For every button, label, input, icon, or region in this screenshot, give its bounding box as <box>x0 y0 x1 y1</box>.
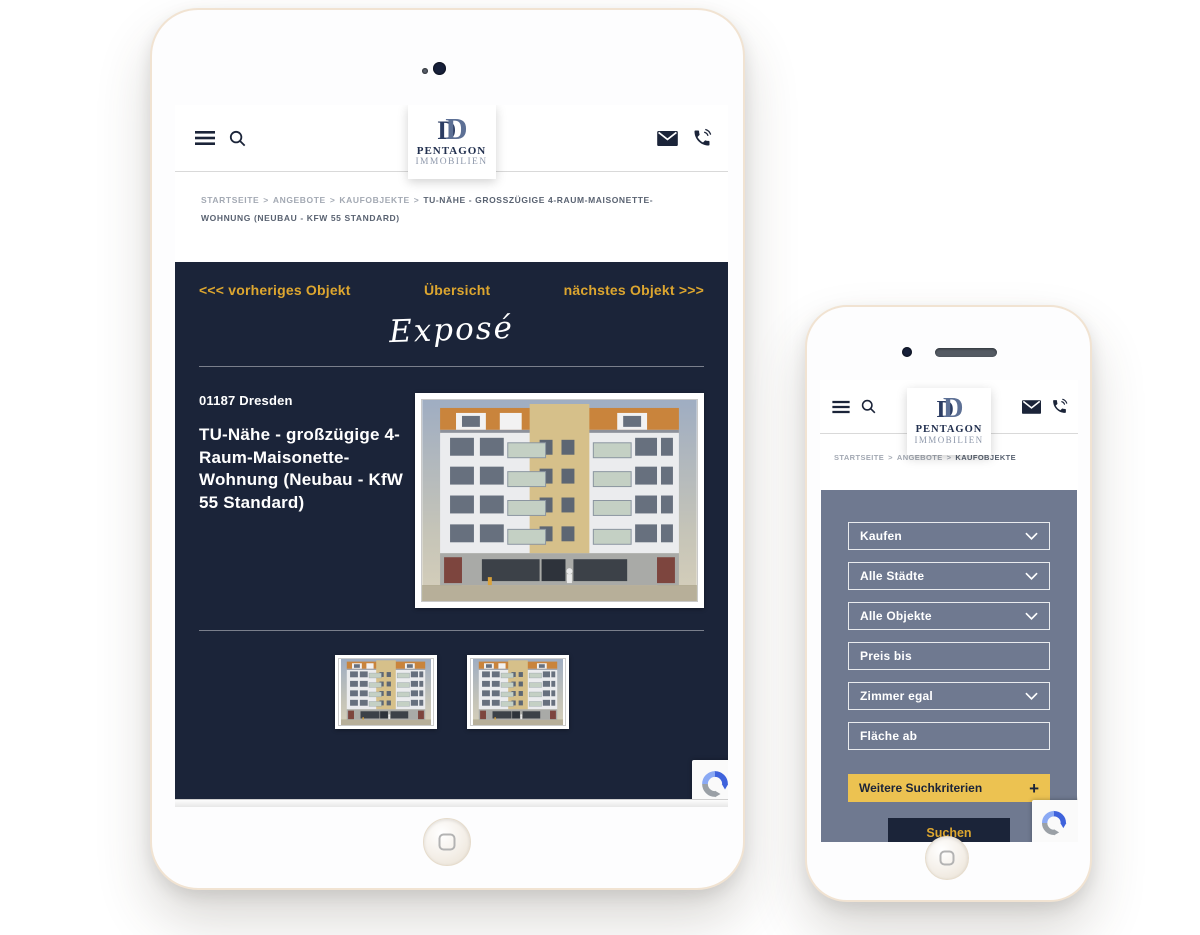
mail-icon[interactable] <box>1022 400 1041 414</box>
page-bottom-strip <box>175 799 728 807</box>
mail-icon[interactable] <box>657 131 678 146</box>
recaptcha-icon <box>1040 809 1068 837</box>
property-content: 01187 Dresden TU-Nähe - großzügige 4-Rau… <box>199 393 704 608</box>
chevron-down-icon <box>1025 572 1038 580</box>
phone-site-header: DD PENTAGON IMMOBILIEN <box>820 380 1078 434</box>
previous-object-link[interactable]: <<< vorheriges Objekt <box>199 282 351 298</box>
phone-screen: DD PENTAGON IMMOBILIEN STARTSEITE>ANGEBO… <box>820 380 1078 842</box>
pentagon-logo[interactable]: DD PENTAGON IMMOBILIEN <box>408 105 496 179</box>
breadcrumb-link-kaufobjekte[interactable]: KAUFOBJEKTE <box>339 195 409 205</box>
phone-speaker-slot <box>935 348 997 357</box>
filter-label: Zimmer egal <box>860 689 933 703</box>
chevron-down-icon <box>1025 532 1038 540</box>
logo-subtitle: IMMOBILIEN <box>915 435 984 445</box>
divider <box>199 630 704 631</box>
property-main-photo[interactable] <box>415 393 704 608</box>
menu-icon[interactable] <box>832 400 850 414</box>
expose-script-heading: Exposé <box>199 303 705 357</box>
phone-device-frame: DD PENTAGON IMMOBILIEN STARTSEITE>ANGEBO… <box>805 305 1092 902</box>
tablet-screen: DD PENTAGON IMMOBILIEN STARTSEITE>ANGEBO… <box>175 105 728 807</box>
logo-name: PENTAGON <box>916 424 983 435</box>
pentagon-logo[interactable]: DD PENTAGON IMMOBILIEN <box>907 388 991 455</box>
property-location: 01187 Dresden <box>199 393 407 408</box>
expose-section: <<< vorheriges Objekt Übersicht nächstes… <box>175 262 728 799</box>
tablet-home-button[interactable] <box>423 818 471 866</box>
filter-input-flaeche[interactable]: Fläche ab <box>848 722 1050 750</box>
object-navigation: <<< vorheriges Objekt Übersicht nächstes… <box>199 282 704 298</box>
more-criteria-button[interactable]: Weitere Suchkriterien + <box>848 774 1050 802</box>
page-background: DD PENTAGON IMMOBILIEN STARTSEITE>ANGEBO… <box>0 0 1200 935</box>
tablet-site-header: DD PENTAGON IMMOBILIEN <box>175 105 728 172</box>
breadcrumb-link-startseite[interactable]: STARTSEITE <box>834 453 884 462</box>
photo-thumbnails <box>199 655 704 729</box>
divider <box>199 366 704 367</box>
breadcrumb-separator: > <box>263 195 269 205</box>
filter-label: Preis bis <box>860 649 912 663</box>
search-icon[interactable] <box>861 399 876 414</box>
logo-monogram: DD <box>438 117 466 142</box>
menu-icon[interactable] <box>195 130 215 146</box>
breadcrumb-separator: > <box>330 195 336 205</box>
search-filter-panel: Kaufen Alle Städte Alle Objekte Preis bi… <box>821 490 1077 842</box>
overview-link[interactable]: Übersicht <box>424 282 490 298</box>
breadcrumb-separator: > <box>414 195 420 205</box>
phone-home-button[interactable] <box>925 836 969 880</box>
breadcrumb-link-startseite[interactable]: STARTSEITE <box>201 195 259 205</box>
breadcrumb-link-angebote[interactable]: ANGEBOTE <box>273 195 326 205</box>
home-button-square <box>439 834 456 851</box>
plus-icon: + <box>1029 780 1039 797</box>
filter-select-objekte[interactable]: Alle Objekte <box>848 602 1050 630</box>
recaptcha-icon <box>700 769 728 799</box>
logo-name: PENTAGON <box>417 145 487 157</box>
thumbnail-photo-1[interactable] <box>335 655 437 729</box>
chevron-down-icon <box>1025 612 1038 620</box>
tablet-sensor-dot <box>422 68 428 74</box>
property-title: TU-Nähe - großzügige 4-Raum-Maisonette-W… <box>199 424 407 514</box>
recaptcha-badge[interactable] <box>1032 800 1078 842</box>
logo-monogram: DD <box>937 398 962 421</box>
filter-label: Fläche ab <box>860 729 917 743</box>
phone-camera-dot <box>902 347 912 357</box>
filter-label: Kaufen <box>860 529 902 543</box>
next-object-link[interactable]: nächstes Objekt >>> <box>564 282 704 298</box>
logo-subtitle: IMMOBILIEN <box>415 157 487 167</box>
phone-icon[interactable] <box>1051 398 1068 415</box>
breadcrumb-separator: > <box>888 453 893 462</box>
search-icon[interactable] <box>229 130 246 147</box>
more-criteria-label: Weitere Suchkriterien <box>859 781 982 795</box>
filter-select-zimmer[interactable]: Zimmer egal <box>848 682 1050 710</box>
tablet-device-frame: DD PENTAGON IMMOBILIEN STARTSEITE>ANGEBO… <box>150 8 745 890</box>
filter-label: Alle Objekte <box>860 609 932 623</box>
tablet-camera-dot <box>433 62 446 75</box>
thumbnail-photo-2[interactable] <box>467 655 569 729</box>
phone-icon[interactable] <box>692 128 712 148</box>
filter-label: Alle Städte <box>860 569 924 583</box>
chevron-down-icon <box>1025 692 1038 700</box>
filter-select-staedte[interactable]: Alle Städte <box>848 562 1050 590</box>
filter-input-preis[interactable]: Preis bis <box>848 642 1050 670</box>
filter-select-kaufen[interactable]: Kaufen <box>848 522 1050 550</box>
breadcrumb: STARTSEITE>ANGEBOTE>KAUFOBJEKTE>TU-NÄHE … <box>175 172 728 242</box>
home-button-square <box>940 851 955 866</box>
